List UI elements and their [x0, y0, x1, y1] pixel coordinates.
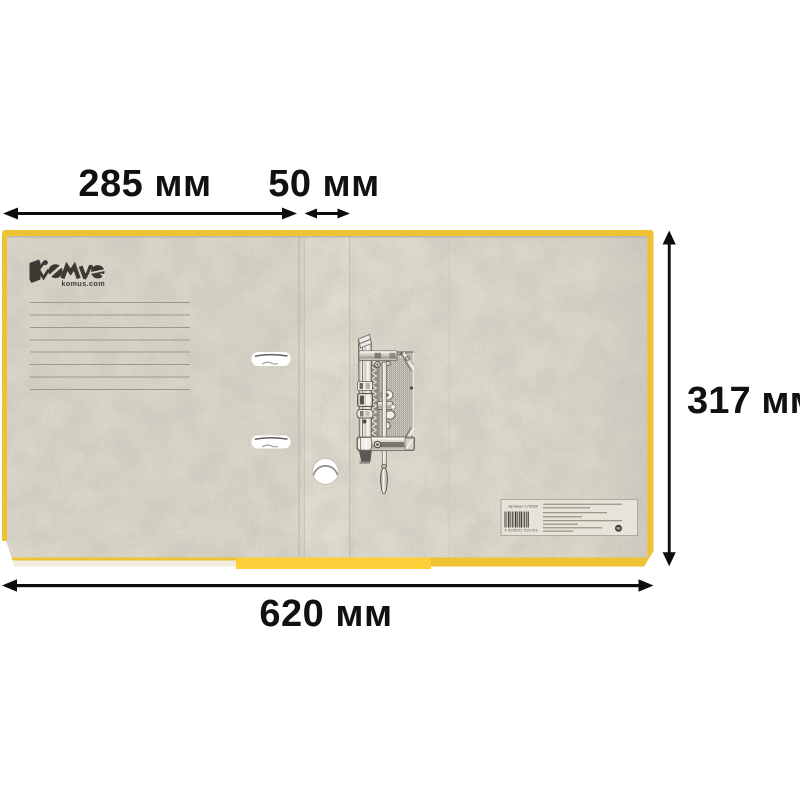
- svg-text:50 мм: 50 мм: [268, 163, 380, 205]
- svg-text:317 мм: 317 мм: [687, 380, 800, 422]
- svg-text:4 690531 510763: 4 690531 510763: [505, 529, 538, 533]
- svg-text:620 мм: 620 мм: [259, 593, 392, 635]
- svg-text:285 мм: 285 мм: [78, 163, 211, 205]
- svg-text:komus.com: komus.com: [61, 279, 105, 288]
- svg-text:Артикул 173939: Артикул 173939: [509, 504, 539, 509]
